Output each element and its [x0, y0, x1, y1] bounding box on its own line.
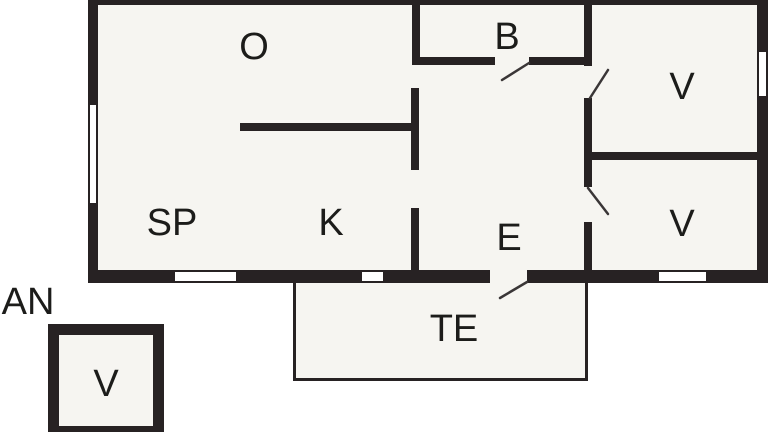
window-right-wall	[757, 50, 768, 98]
room-label-k: K	[318, 204, 343, 242]
wall-o-horizontal	[240, 123, 415, 131]
entrance-door-gap	[490, 270, 527, 283]
wall-b-right	[584, 0, 592, 66]
room-label-sp: SP	[147, 204, 198, 242]
wall-divider-upper	[584, 98, 592, 187]
wall-b-bottom-right	[529, 57, 591, 65]
room-label-te: TE	[430, 310, 479, 348]
window-bottom-k	[360, 270, 385, 283]
wall-b-left	[412, 0, 420, 65]
room-label-o: O	[239, 28, 269, 66]
wall-v-divider	[584, 152, 757, 160]
wall-divider-lower	[584, 222, 592, 270]
room-label-b: B	[494, 18, 519, 56]
floor-plan: O B V V SP K E TE AN V	[0, 0, 768, 432]
wall-top	[88, 0, 767, 5]
window-left-wall	[88, 103, 98, 205]
room-label-v-bottom: V	[669, 205, 694, 243]
room-label-annex-v: V	[93, 365, 118, 403]
annex-title-an: AN	[2, 283, 55, 321]
window-bottom-v	[657, 270, 708, 283]
wall-k-upper	[411, 88, 419, 170]
wall-right	[757, 0, 768, 283]
wall-b-bottom-left	[412, 57, 495, 65]
wall-k-lower	[411, 208, 419, 270]
room-label-v-top: V	[669, 68, 694, 106]
window-bottom-sp	[173, 270, 238, 283]
room-label-e: E	[496, 219, 521, 257]
